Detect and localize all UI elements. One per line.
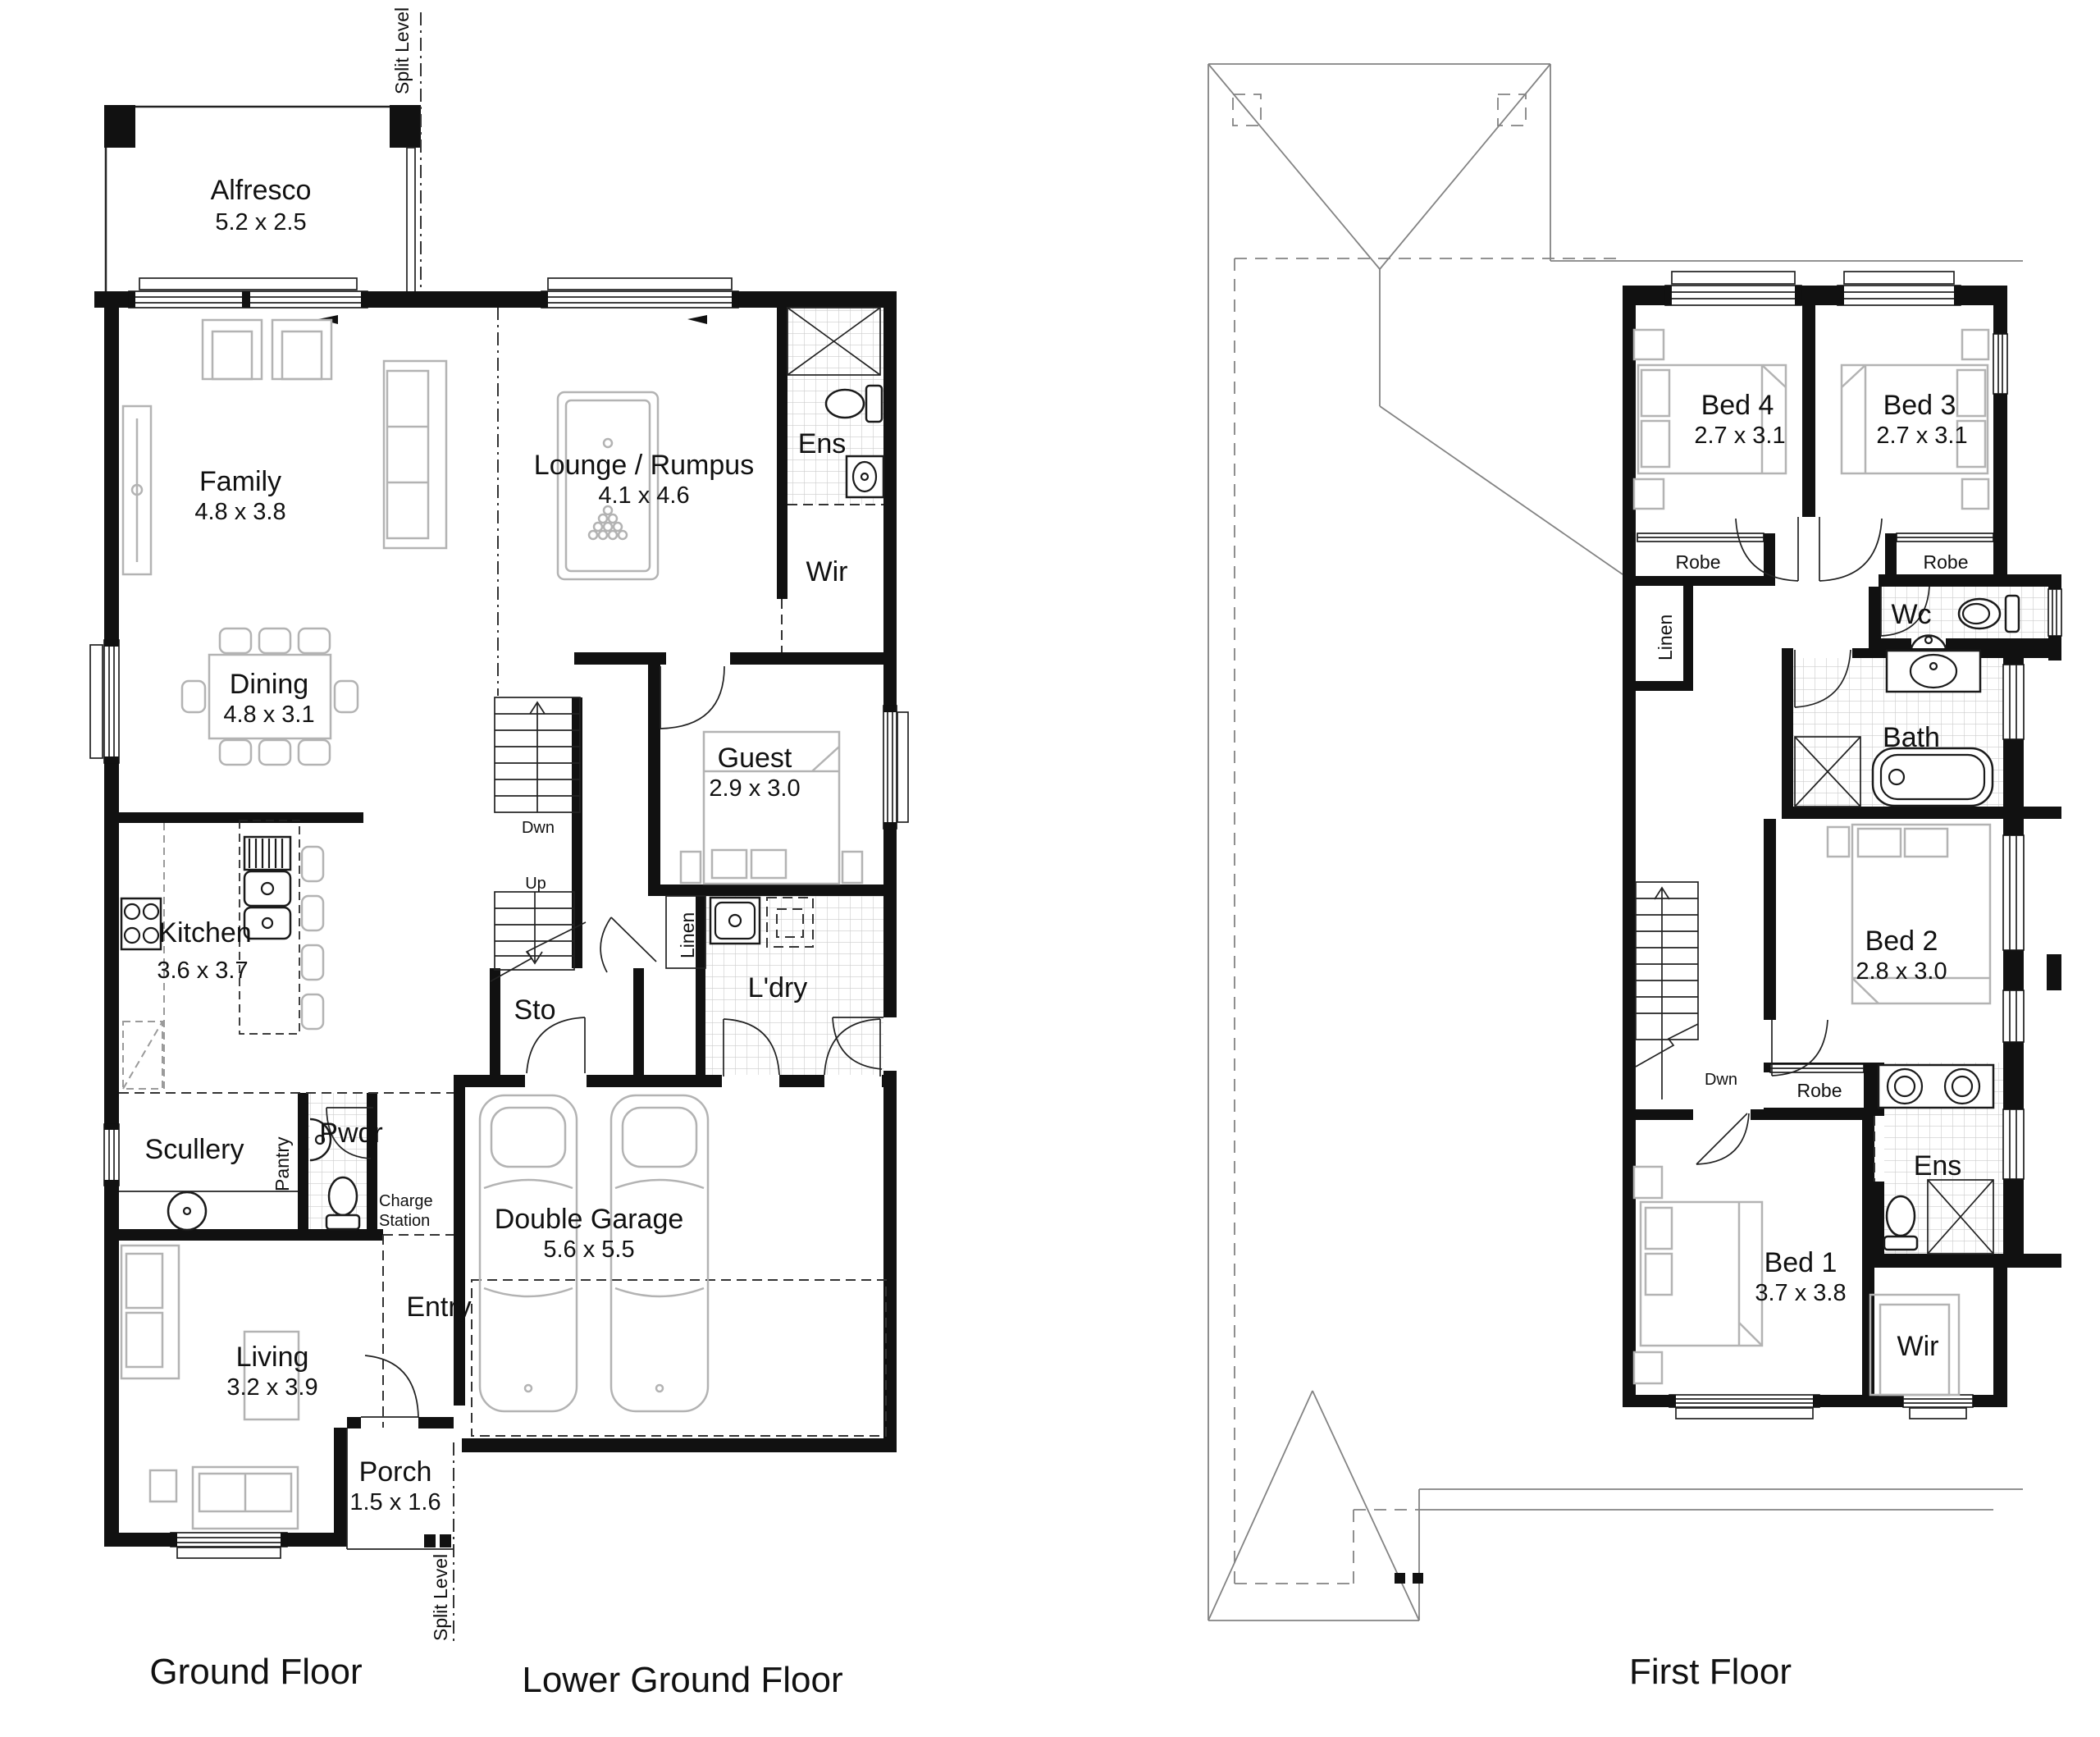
powder-label: Pwdr xyxy=(319,1118,382,1149)
bed1-furniture xyxy=(1634,1167,1762,1383)
split-level-label-bottom: Split Level xyxy=(430,1554,451,1641)
alfresco-dims: 5.2 x 2.5 xyxy=(215,209,306,235)
garage-label: Double Garage xyxy=(495,1204,684,1235)
bed3-dims: 2.7 x 3.1 xyxy=(1876,423,1967,449)
family-dims: 4.8 x 3.8 xyxy=(194,499,285,525)
porch-label: Porch xyxy=(359,1456,432,1488)
stairs-up-label-ground: Up xyxy=(525,875,546,893)
guest-dims: 2.9 x 3.0 xyxy=(709,775,800,802)
lounge-label: Lounge / Rumpus xyxy=(534,450,754,481)
stairs-down-label-first: Dwn xyxy=(1705,1071,1737,1089)
bed4-dims: 2.7 x 3.1 xyxy=(1694,423,1785,449)
lounge-dims: 4.1 x 4.6 xyxy=(598,482,689,509)
robe-bed1-label: Robe xyxy=(1797,1080,1842,1101)
slider-arrow-lounge xyxy=(687,315,707,324)
pantry-label: Pantry xyxy=(272,1136,293,1191)
wc-label: Wc xyxy=(1891,599,1931,630)
bed4-label: Bed 4 xyxy=(1701,390,1774,421)
title-ground-floor: Ground Floor xyxy=(149,1652,362,1692)
ensuite-ground-label: Ens xyxy=(798,428,847,459)
ground-floor-plan: Alfresco 5.2 x 2.5 Family 4.8 x 3.8 Loun… xyxy=(90,7,908,1645)
first-floor-plan: Bed 4 2.7 x 3.1 Bed 3 2.7 x 3.1 Robe Rob… xyxy=(1208,64,2061,1620)
wir-first-label: Wir xyxy=(1897,1331,1939,1362)
bed2-dims: 2.8 x 3.0 xyxy=(1856,958,1947,985)
floor-plan-page: Alfresco 5.2 x 2.5 Family 4.8 x 3.8 Loun… xyxy=(0,0,2100,1737)
family-label: Family xyxy=(199,466,281,497)
alfresco-label: Alfresco xyxy=(211,175,312,206)
dining-dims: 4.8 x 3.1 xyxy=(223,702,314,728)
charge-station-label-2: Station xyxy=(379,1212,430,1230)
kitchen-dims: 3.6 x 3.7 xyxy=(157,958,248,984)
bed2-label: Bed 2 xyxy=(1865,926,1938,957)
bed3-label: Bed 3 xyxy=(1883,390,1956,421)
scullery-label: Scullery xyxy=(145,1134,244,1165)
stairs-first xyxy=(1636,882,1698,1099)
floor-plan-drawing: Alfresco 5.2 x 2.5 Family 4.8 x 3.8 Loun… xyxy=(0,0,2100,1737)
entry-label: Entry xyxy=(406,1291,471,1323)
linen-first-label: Linen xyxy=(1655,615,1676,661)
robe-bed3-label: Robe xyxy=(1924,551,1969,573)
porch-dims: 1.5 x 1.6 xyxy=(349,1489,441,1515)
living-dims: 3.2 x 3.9 xyxy=(226,1374,317,1401)
garage-dims: 5.6 x 5.5 xyxy=(543,1236,634,1263)
title-lower-ground-floor: Lower Ground Floor xyxy=(522,1660,842,1700)
sto-label: Sto xyxy=(514,994,555,1026)
ensuite-first-label: Ens xyxy=(1914,1150,1962,1182)
guest-label: Guest xyxy=(718,743,792,774)
title-first-floor: First Floor xyxy=(1629,1652,1792,1692)
linen-ground-label: Linen xyxy=(677,912,698,958)
family-furniture xyxy=(123,320,446,574)
bath-label: Bath xyxy=(1883,722,1940,753)
stairs-ground xyxy=(491,697,586,981)
split-level-label-top: Split Level xyxy=(391,7,413,94)
bed1-label: Bed 1 xyxy=(1764,1247,1837,1278)
laundry-label: L'dry xyxy=(748,972,808,1003)
dining-label: Dining xyxy=(230,669,308,700)
stairs-down-label-ground: Dwn xyxy=(522,819,555,837)
wir-ground-label: Wir xyxy=(806,556,848,587)
living-label: Living xyxy=(236,1342,309,1373)
bed1-dims: 3.7 x 3.8 xyxy=(1755,1280,1846,1306)
robe-bed4-label: Robe xyxy=(1676,551,1721,573)
kitchen-label: Kitchen xyxy=(158,917,251,948)
charge-station-label-1: Charge xyxy=(379,1192,433,1210)
